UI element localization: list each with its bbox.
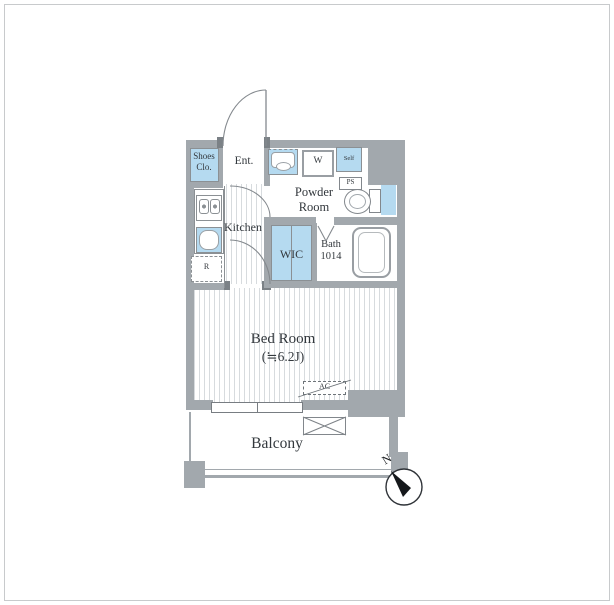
shoes-closet-line1: Shoes bbox=[193, 151, 215, 161]
ac-outdoor-unit-box bbox=[303, 417, 346, 435]
shoes-closet-label: ShoesClo. bbox=[187, 151, 221, 173]
powder-line1: Powder bbox=[295, 185, 333, 199]
balcony-rail-line bbox=[199, 475, 395, 478]
kitchen-label: Kitchen bbox=[218, 221, 268, 234]
ac-label: AC bbox=[303, 383, 346, 392]
pipe-space-label: PS bbox=[339, 179, 362, 187]
toilet-bowl bbox=[349, 194, 366, 209]
entrance-label: Ent. bbox=[221, 155, 267, 168]
wall-segment bbox=[301, 400, 348, 410]
structural-block bbox=[368, 148, 397, 185]
powder-room-label: PowderRoom bbox=[279, 185, 349, 215]
wall-segment bbox=[186, 400, 213, 410]
wall-segment bbox=[264, 281, 405, 288]
bath-line1: Bath bbox=[321, 239, 341, 250]
balcony-rail-line bbox=[199, 469, 395, 470]
floor-plan: ShoesClo. Ent. PowderRoom Kitchen WIC Ba… bbox=[0, 0, 614, 605]
window-mullion bbox=[257, 402, 258, 413]
shoes-closet-line2: Clo. bbox=[196, 162, 211, 172]
wall-segment bbox=[397, 140, 405, 417]
bedroom-line1: Bed Room bbox=[251, 331, 316, 347]
counter-edge-line bbox=[224, 186, 225, 288]
wic-label: WIC bbox=[271, 248, 312, 261]
balcony-edge bbox=[189, 412, 191, 465]
bedroom-size: (≒6.2J) bbox=[262, 349, 304, 364]
vanity-bowl bbox=[276, 162, 291, 171]
bathtub-inner bbox=[358, 232, 385, 273]
wall-segment bbox=[264, 217, 316, 225]
bedroom-label: Bed Room(≒6.2J) bbox=[183, 330, 383, 366]
wall-segment bbox=[348, 390, 405, 417]
wall-segment bbox=[264, 140, 405, 148]
stove-burner-icon bbox=[210, 199, 220, 214]
toilet-backwall bbox=[381, 185, 396, 215]
sink-basin bbox=[199, 230, 219, 250]
wall-segment bbox=[334, 217, 397, 225]
washer-label: W bbox=[302, 156, 334, 166]
balcony-label: Balcony bbox=[227, 435, 327, 452]
bath-line2: 1014 bbox=[321, 251, 342, 262]
refrigerator-label: R bbox=[191, 263, 222, 272]
powder-line2: Room bbox=[299, 200, 330, 214]
stove-burner-icon bbox=[199, 199, 209, 214]
self-label: Self bbox=[336, 155, 362, 162]
bath-label: Bath1014 bbox=[312, 239, 350, 263]
wall-segment bbox=[186, 182, 223, 188]
